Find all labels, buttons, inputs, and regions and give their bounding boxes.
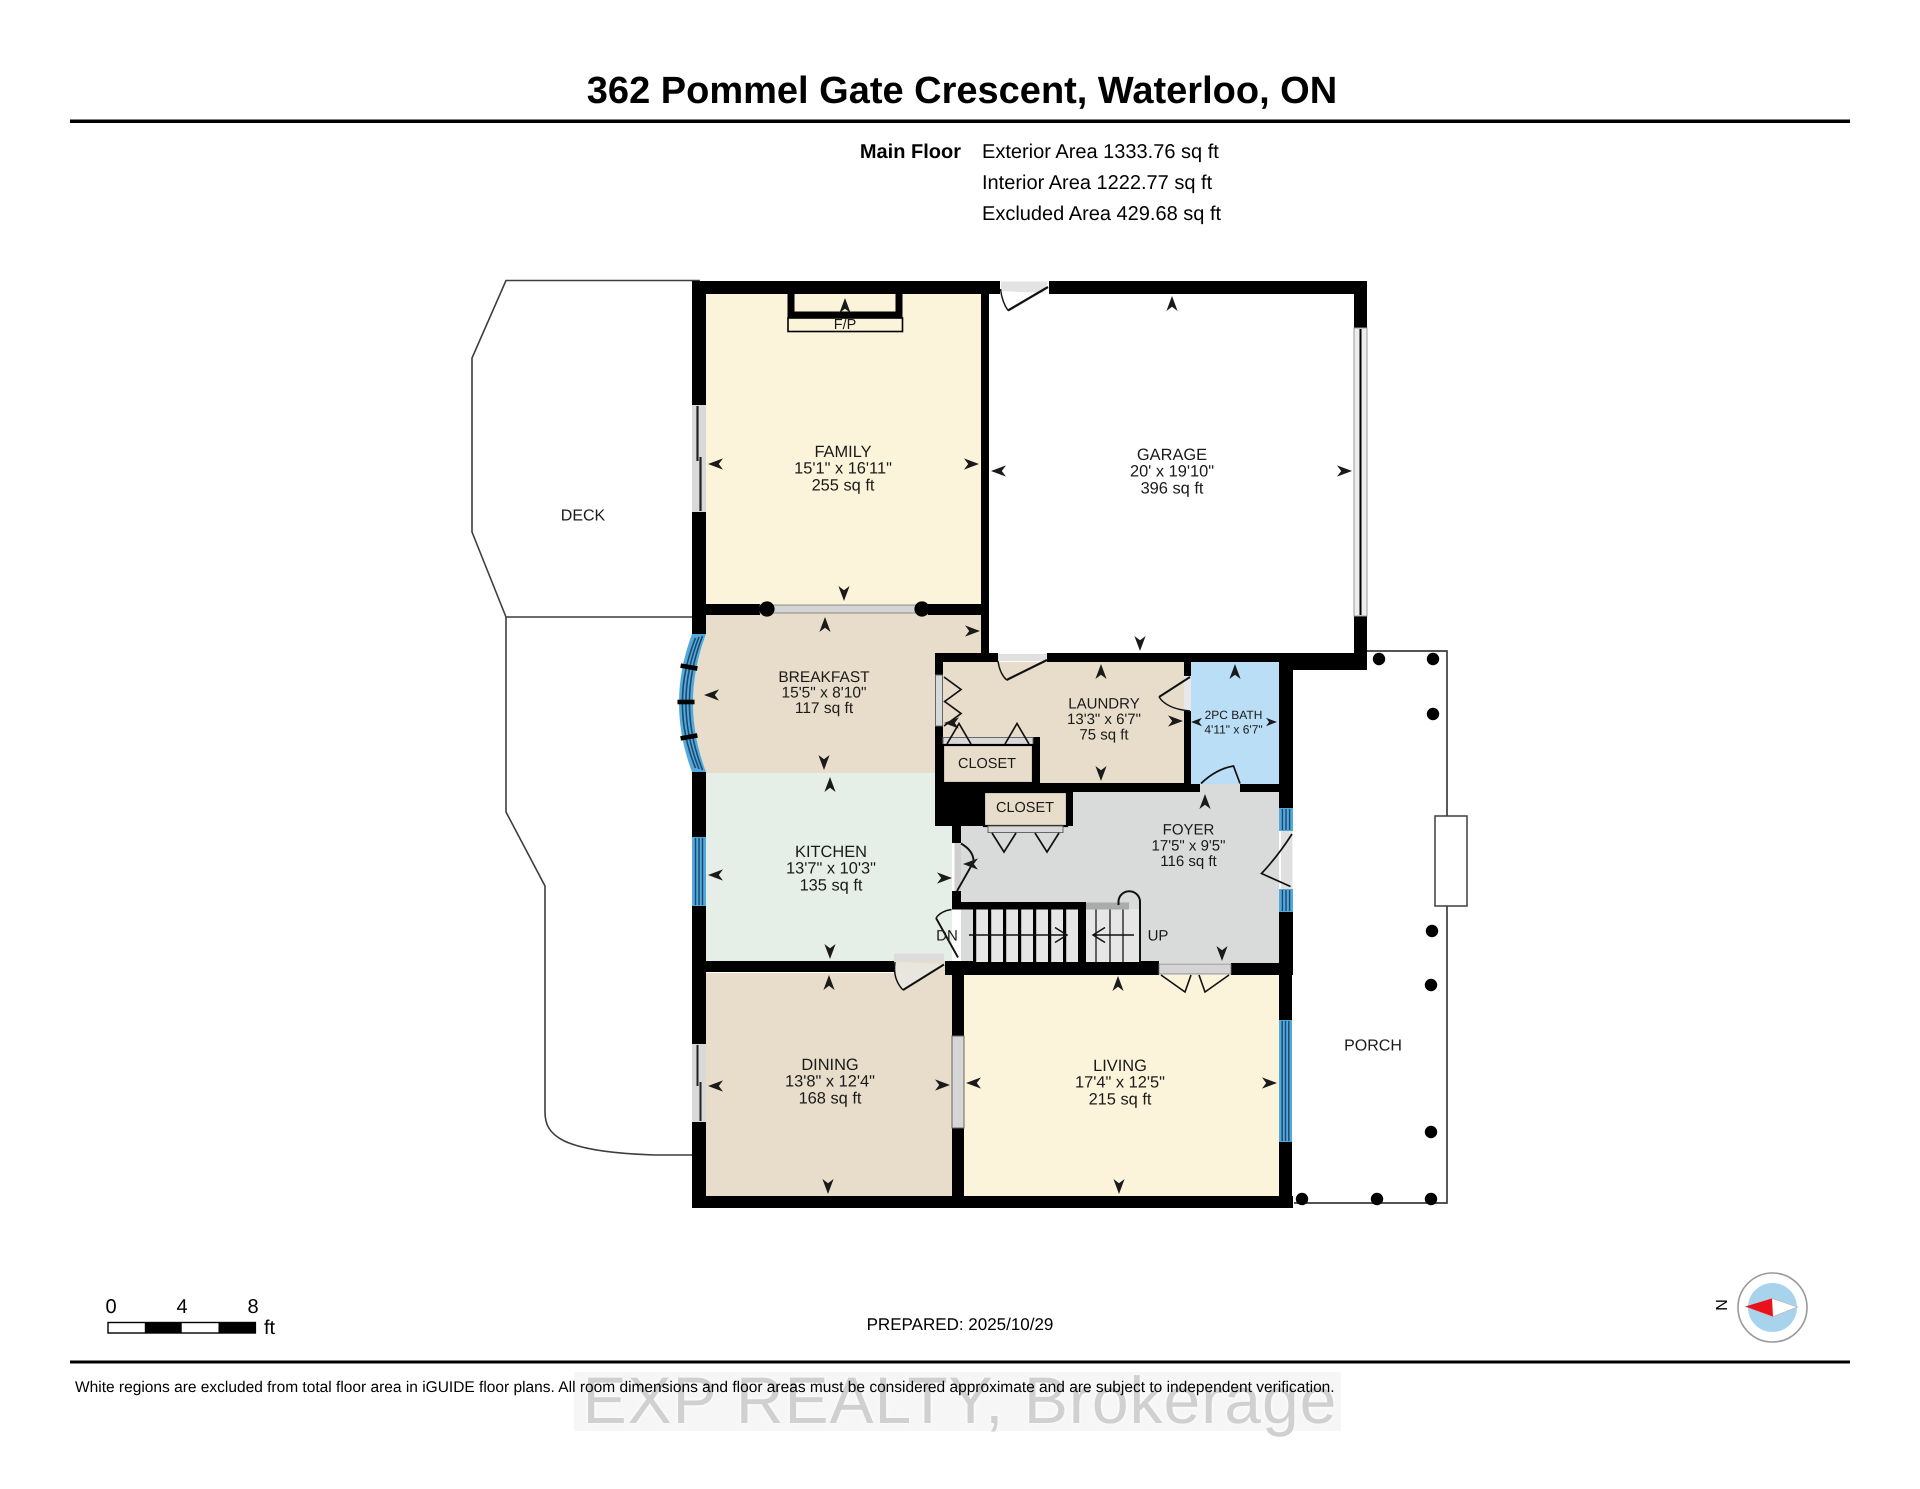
svg-text:CLOSET: CLOSET — [996, 800, 1054, 816]
svg-text:F/P: F/P — [834, 317, 857, 333]
svg-text:N: N — [1714, 1299, 1731, 1311]
svg-text:Main Floor: Main Floor — [860, 141, 961, 163]
svg-text:4: 4 — [176, 1296, 187, 1318]
svg-text:EXP REALTY, Brokerage: EXP REALTY, Brokerage — [583, 1363, 1338, 1437]
svg-text:Interior Area 1222.77 sq ft: Interior Area 1222.77 sq ft — [982, 172, 1213, 194]
svg-text:PORCH: PORCH — [1344, 1038, 1402, 1055]
svg-text:White regions are excluded fro: White regions are excluded from total fl… — [75, 1379, 1335, 1396]
svg-text:8: 8 — [247, 1296, 258, 1318]
svg-text:Exterior Area 1333.76 sq ft: Exterior Area 1333.76 sq ft — [982, 141, 1219, 163]
svg-text:Excluded Area 429.68 sq ft: Excluded Area 429.68 sq ft — [982, 203, 1221, 225]
svg-text:CLOSET: CLOSET — [958, 756, 1016, 772]
svg-text:ft: ft — [264, 1317, 276, 1339]
svg-text:DECK: DECK — [561, 508, 606, 525]
svg-text:DN: DN — [936, 928, 958, 945]
svg-text:GARAGE20' x 19'10"396 sq ft: GARAGE20' x 19'10"396 sq ft — [1130, 446, 1214, 497]
svg-text:PREPARED: 2025/10/29: PREPARED: 2025/10/29 — [867, 1315, 1054, 1334]
svg-text:UP: UP — [1148, 928, 1169, 945]
svg-text:2PC BATH4'11" x 6'7": 2PC BATH4'11" x 6'7" — [1204, 708, 1262, 736]
svg-text:362 Pommel Gate Crescent, Wate: 362 Pommel Gate Crescent, Waterloo, ON — [587, 70, 1337, 112]
svg-text:0: 0 — [105, 1296, 116, 1318]
